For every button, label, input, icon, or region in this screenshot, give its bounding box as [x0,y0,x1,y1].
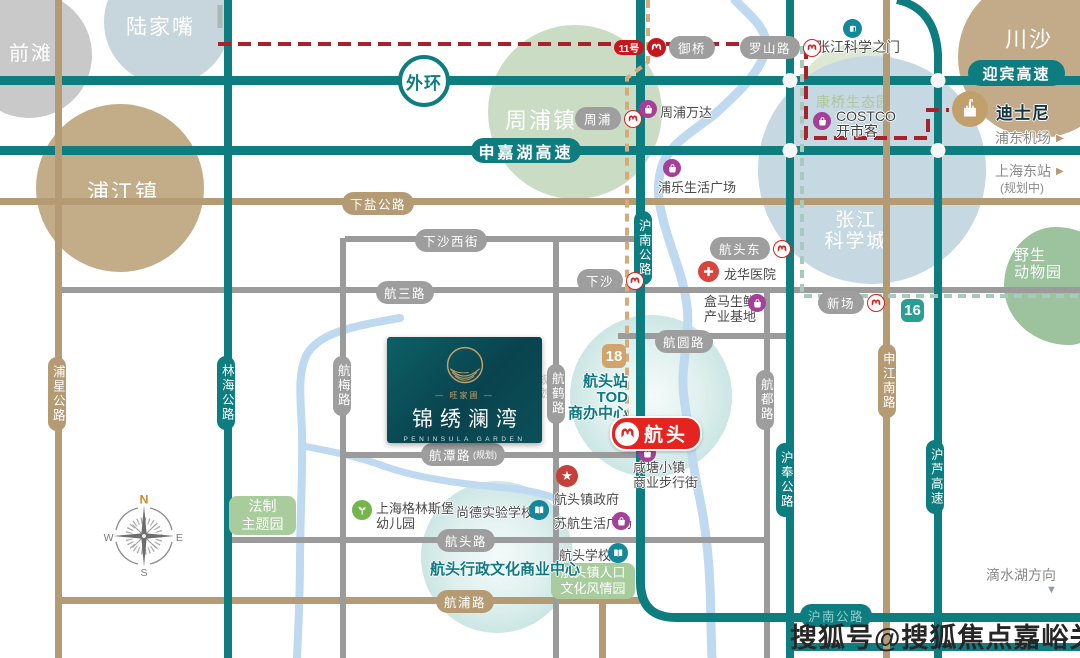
direction-shanghai-east-note: (规划中) [1000,179,1044,196]
road-hulu-hwy [934,76,942,658]
road-label-hangpu: 航浦路 [436,590,494,613]
poi-disney: 迪士尼 [996,99,1050,124]
road-hangdu [764,288,770,658]
property-logo-icon [442,344,488,388]
road-label-hangdu: 航都路 [756,370,774,430]
road-label-shenjiang: 申江南路 [878,344,896,418]
label-admin-center: 航头行政文化商业中心 [430,558,580,579]
badge-line-16: 16 [901,299,924,322]
road-hangsan [56,287,1080,293]
shopping-icon [612,512,630,530]
metro-icon [867,294,885,312]
road-label-linhai: 林海公路 [217,356,235,430]
compass-rose: N W E S [101,493,187,579]
road-linhai [224,0,232,658]
metro-icon [803,39,821,57]
road-label-xiasha-xijie: 下沙西街 [415,229,487,252]
road-label-hulu: 沪芦高速 [926,440,944,514]
property-brand: — 旺家圃 — [435,390,493,401]
area-label-qiantan: 前滩 [9,37,53,66]
poi-hangtou-government: 航头镇政府 [554,489,619,508]
station-name: 航头 [644,420,688,447]
school-book-icon [529,500,549,520]
road-xiasha-xijie [345,236,640,242]
property-card: — 旺家圃 — 锦绣澜湾 PENINSULA GARDEN [387,337,542,443]
right-arrow-icon: ▶ [1056,133,1064,144]
compass-s: S [140,567,147,579]
direction-shanghai-east: 上海东站▶ [995,161,1064,181]
road-label-hangyuan: 航圆路 [655,330,713,353]
road-label-hangsan: 航三路 [376,281,434,304]
road-hangtou [228,537,768,543]
compass-e: E [176,532,183,544]
poi-longhua-hospital: 龙华医院 [724,264,776,283]
shopping-icon [748,294,766,312]
poi-costco: COSTCO 开市客 [836,109,896,139]
road-outer-ring [0,76,1080,85]
road-label-puxing: 浦星公路 [48,357,66,431]
poi-xiantang-street: 咸塘小镇 商业步行街 [633,460,698,490]
road-shenjiang [883,0,890,658]
badge-yingbin-hwy: 迎宾高速 [968,60,1065,86]
metro-icon [647,38,666,57]
badge-outer-ring: 外环 [398,55,450,107]
label-tod-center: 航头站 TOD 商办中心 [558,374,628,422]
road-south-stub [599,600,606,658]
down-arrow-icon: ▼ [1046,584,1057,596]
road-label-hufeng: 沪奉公路 [776,443,794,517]
area-label-safari-park: 野生 动物园 [1014,247,1062,281]
metro-icon [626,272,644,290]
watermark-text: 搜狐号@搜狐焦点嘉峪关站 [790,616,1080,655]
area-label-zhoupuzhen: 周浦镇 [505,103,577,135]
road-hangmei [340,238,346,658]
station-pill: 航头东 [710,237,770,260]
hospital-cross-icon [698,261,719,282]
metro-icon [615,422,639,446]
station-pill: 下沙 [577,269,623,292]
badge-line-11: 11号 [614,40,644,55]
right-arrow-icon: ▶ [1056,166,1064,177]
station-zhoupu: 周浦 [575,107,642,130]
disney-castle-icon [952,91,988,127]
station-hangtoudong: 航头东 [710,237,791,260]
area-label-chuansha: 川沙 [1005,22,1053,54]
poi-kindergarten: 上海格林斯堡 幼儿园 [376,501,454,531]
metro-icon [773,240,791,258]
direction-pudong-airport: 浦东机场▶ [995,128,1064,148]
poi-shangde-school: 尚德实验学校 [456,502,534,521]
poi-zhoupu-wanda: 周浦万达 [660,102,712,121]
property-name-en: PENINSULA GARDEN [403,436,525,443]
badge-shenjiahu-hwy: 申嘉湖高速 [471,138,581,163]
station-pill: 御桥 [669,36,715,59]
station-xiasha: 下沙 [577,269,644,292]
station-yuqiao: 11号 御桥 [614,36,715,59]
poi-pule-plaza: 浦乐生活广场 [658,177,736,196]
direction-dishuihu: 滴水湖方向 [986,565,1056,585]
property-name: 锦绣澜湾 [405,403,524,433]
station-xinchang: 新场 [818,291,885,314]
station-pill: 新场 [818,291,864,314]
road-label-hangtan: 航潭路 (规划) [421,443,505,466]
station-hangtou: 航头 [610,416,702,451]
shopping-icon [813,112,831,130]
kindergarten-sprout-icon [352,500,372,520]
shopping-icon [663,159,681,177]
compass-w: W [104,532,114,544]
poi-fazhi-park: 法制 主题园 [229,496,296,535]
road-label-hangmei: 航梅路 [333,356,351,416]
school-book-icon [608,543,628,563]
road-label-xiayan: 下盐公路 [342,192,414,215]
compass-n: N [140,493,149,507]
map-canvas: 前滩 陆家嘴 浦江镇 周浦镇 张江 科学城 川沙 康桥生态园 野生 动物园 [0,0,1080,658]
road-puxing [55,0,62,658]
station-luoshanlu: 罗山路 [740,36,821,59]
poi-zhangjiang-gate: 张江科学之门 [816,37,900,57]
zhangjiang-gate-icon [843,19,862,38]
shopping-icon [639,100,657,118]
road-xiayan [0,198,1080,205]
area-label-lujiazui: 陆家嘴 [126,11,195,41]
road-label-hangtou: 航头路 [437,529,495,552]
government-star-icon: ★ [556,465,578,487]
station-pill: 罗山路 [740,36,800,59]
badge-line-18: 18 [602,344,626,368]
road-hufeng [786,0,794,658]
station-pill: 周浦 [575,107,621,130]
